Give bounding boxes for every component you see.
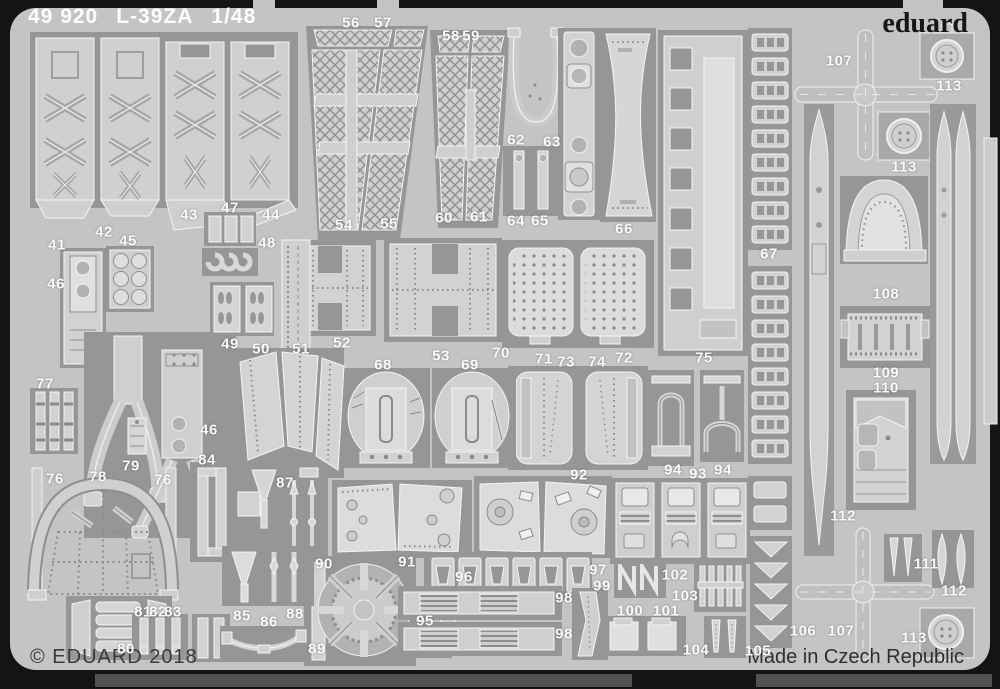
part-number-label-96: 96 (455, 569, 473, 586)
part-number-label-56: 56 (342, 15, 360, 32)
hourglass-panel-66 (600, 28, 656, 222)
part-number-label-77: 77 (36, 376, 54, 393)
part-number-label-46: 46 (200, 422, 218, 439)
part-number-label-52: 52 (333, 335, 351, 352)
bent-strip-97-99 (572, 588, 608, 660)
seat-plate-68 (342, 368, 430, 468)
part-number-label-92: 92 (570, 467, 588, 484)
part-number-label-42: 42 (95, 224, 113, 241)
part-number-label-88: 88 (286, 606, 304, 623)
part-number-label-41: 41 (48, 237, 66, 254)
part-number-label-89: 89 (308, 641, 326, 658)
part-number-label-62: 62 (507, 132, 525, 149)
part-number-label-97: 97 (589, 562, 607, 579)
sheet-edge-tabs (95, 674, 992, 687)
part-number-label-84: 84 (198, 452, 216, 469)
part-number-label-54: 54 (335, 217, 353, 234)
console-boxes-row (610, 478, 750, 564)
part-number-label-53: 53 (432, 348, 450, 365)
part-number-label-105: 105 (745, 643, 772, 660)
blade-rail-right-pair (930, 104, 976, 464)
part-number-label-112: 112 (941, 583, 967, 600)
part-number-label-76: 76 (46, 471, 64, 488)
mesh-flap-58-61 (430, 30, 510, 228)
part-number-label-58: 58 (442, 28, 460, 45)
part-number-label-103: 103 (672, 588, 699, 605)
part-number-label-64: 64 (507, 213, 525, 230)
kit-name: L-39ZA (116, 5, 193, 29)
grommet-grid-45 (106, 246, 154, 312)
part-number-label-98: 98 (555, 590, 573, 607)
part-number-label-71: 71 (535, 351, 553, 368)
part-number-label-101: 101 (653, 603, 680, 620)
part-number-label-78: 78 (89, 469, 107, 486)
part-number-label-90: 90 (315, 556, 333, 573)
boxes-100-101 (604, 616, 686, 656)
part-number-label-63: 63 (543, 134, 561, 151)
part-number-label-94: 94 (664, 462, 682, 479)
part-number-label-113: 113 (936, 78, 962, 95)
part-number-label-113: 113 (891, 159, 917, 176)
part-number-label-49: 49 (221, 336, 239, 353)
part-number-label-86: 86 (260, 614, 278, 631)
clip-column (748, 476, 792, 530)
part-number-label-100: 100 (617, 603, 644, 620)
seat-backs-92 (508, 366, 648, 470)
ladder-plate-75 (658, 30, 748, 356)
part-number-label-87: 87 (276, 475, 294, 492)
part-number-label-69: 69 (461, 357, 479, 374)
part-number-label-112: 112 (830, 508, 856, 525)
part-number-label-70: 70 (492, 345, 510, 362)
tilted-panels-50-51 (232, 348, 344, 478)
part-number-label-80: 80 (117, 641, 135, 658)
bow-86 (220, 626, 308, 662)
part-number-label-68: 68 (374, 357, 392, 374)
part-number-label-95: 95 (416, 613, 434, 630)
ladder-strips-77 (30, 388, 78, 454)
part-number-label-65: 65 (531, 213, 549, 230)
instrument-panels-left (332, 480, 472, 558)
part-number-label-98: 98 (555, 626, 573, 643)
instrument-panels-right (474, 476, 612, 558)
part-number-label-66: 66 (615, 221, 633, 238)
part-number-label-113: 113 (901, 630, 927, 647)
part-number-label-83: 83 (164, 604, 182, 621)
part-number-label-73: 73 (557, 354, 575, 371)
funnel-85-pins-88 (222, 546, 314, 606)
catalog-number: 49 920 (28, 5, 98, 29)
part-number-label-93: 93 (689, 466, 707, 483)
part-number-label-44: 44 (262, 207, 280, 224)
valve-79 (128, 418, 146, 454)
h-panel-53 (384, 238, 502, 342)
part-number-label-48: 48 (258, 235, 276, 252)
part-number-label-45: 45 (119, 233, 137, 250)
edge-strip-right (984, 138, 997, 424)
part-number-label-51: 51 (292, 341, 310, 358)
made-in-text: Made in Czech Republic (747, 646, 964, 669)
part-number-label-74: 74 (588, 354, 606, 371)
part-number-label-75: 75 (695, 350, 713, 367)
eduard-logo: eduard (882, 8, 968, 40)
sheet-header: 49 920 L-39ZA 1/48 (28, 5, 256, 29)
part-number-label-72: 72 (615, 350, 633, 367)
part-number-label-85: 85 (233, 608, 251, 625)
part-number-label-102: 102 (662, 567, 689, 584)
levers-64-65 (503, 146, 563, 216)
console-side-110 (846, 390, 916, 510)
part-number-label-47: 47 (221, 200, 239, 217)
part-number-label-61: 61 (470, 209, 488, 226)
seat-cushions-70-74 (502, 240, 654, 348)
copyright-text: © EDUARD 2018 (30, 646, 198, 669)
part-number-label-59: 59 (462, 28, 480, 45)
part-number-label-50: 50 (252, 341, 270, 358)
part-number-label-79: 79 (122, 458, 140, 475)
part-number-label-99: 99 (593, 578, 611, 595)
part-number-label-55: 55 (380, 216, 398, 233)
part-number-label-107: 107 (826, 53, 853, 70)
part-number-label-111: 111 (914, 556, 939, 573)
part-number-label-108: 108 (873, 286, 900, 303)
seat-plate-69 (432, 368, 516, 468)
part-number-label-43: 43 (180, 207, 198, 224)
zigzag-parts-102 (614, 560, 666, 598)
dial-plate-113-mid (878, 112, 930, 160)
kit-scale: 1/48 (211, 5, 256, 29)
canopy-arch-108 (840, 176, 928, 264)
part-number-label-94: 94 (714, 462, 732, 479)
connector-109 (840, 306, 930, 368)
part-number-label-57: 57 (374, 15, 392, 32)
pins-104-105 (704, 616, 746, 658)
blade-rail-left (804, 104, 834, 556)
part-number-label-107: 107 (828, 623, 855, 640)
part-number-label-104: 104 (683, 642, 710, 659)
chevron-strip-106 (750, 536, 792, 648)
part-number-label-67: 67 (760, 246, 778, 263)
part-number-label-60: 60 (435, 210, 453, 227)
part-number-label-76: 76 (154, 472, 172, 489)
photoetch-fret-photo: 49 920 L-39ZA 1/48 eduard © EDUARD 2018 … (0, 0, 1000, 689)
part-number-label-110: 110 (873, 380, 899, 397)
part-number-label-106: 106 (790, 623, 817, 640)
comb-part-103 (694, 560, 746, 612)
spine-strip-66 (558, 28, 600, 220)
part-number-label-46: 46 (47, 276, 65, 293)
flap-panels-41-44 (30, 32, 298, 232)
part-number-label-91: 91 (398, 554, 416, 571)
